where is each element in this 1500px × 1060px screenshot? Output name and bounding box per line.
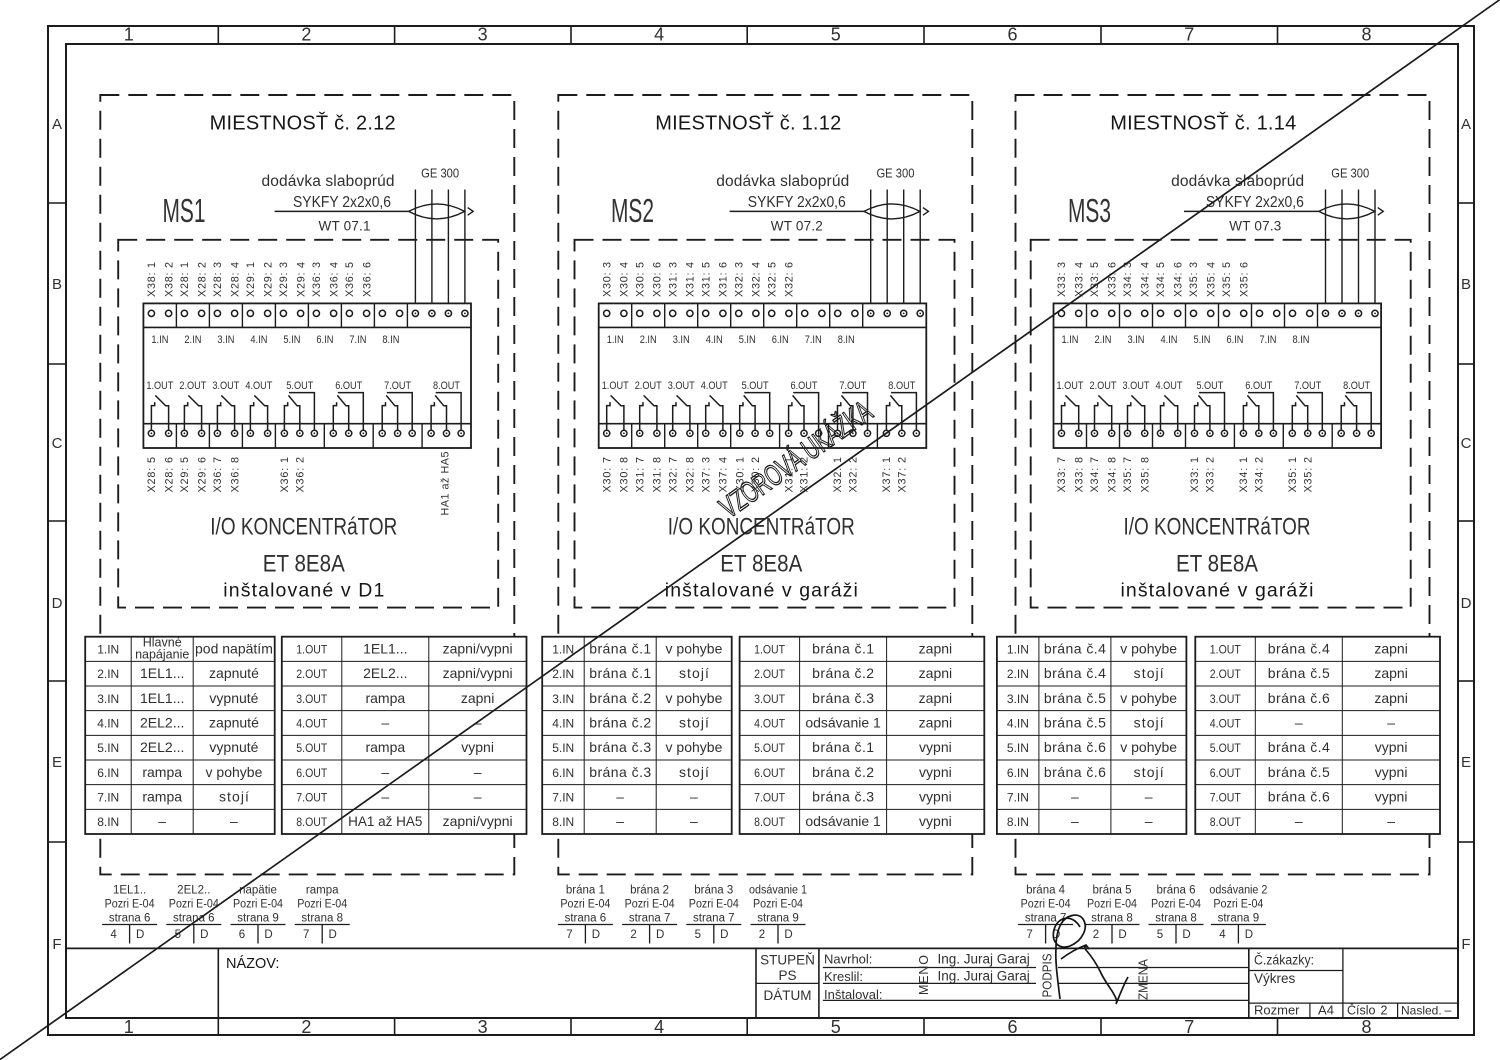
svg-text:3.IN: 3.IN (552, 692, 574, 706)
svg-text:strana 7: strana 7 (693, 913, 735, 925)
svg-text:6.IN: 6.IN (1007, 766, 1029, 780)
svg-text:vypni: vypni (919, 813, 952, 829)
svg-text:inštalované v D1: inštalované v D1 (223, 580, 384, 602)
svg-text:2EL2...: 2EL2... (140, 739, 184, 755)
svg-text:X31: 4: X31: 4 (685, 262, 697, 297)
svg-text:zapni: zapni (461, 690, 494, 706)
svg-text:X36: 5: X36: 5 (344, 262, 356, 297)
svg-text:X37: 3: X37: 3 (700, 457, 712, 493)
svg-text:MENO: MENO (917, 955, 931, 995)
svg-text:zapni: zapni (919, 714, 952, 730)
svg-text:8.IN: 8.IN (382, 334, 399, 346)
svg-text:X32: 1: X32: 1 (832, 457, 844, 493)
svg-text:6.IN: 6.IN (1227, 334, 1244, 346)
svg-text:7: 7 (1184, 1017, 1194, 1037)
svg-text:3.IN: 3.IN (97, 692, 119, 706)
svg-text:X34: 6: X34: 6 (1172, 262, 1184, 297)
svg-text:X29: 1: X29: 1 (245, 262, 257, 297)
svg-text:5.IN: 5.IN (283, 334, 300, 346)
svg-text:7.IN: 7.IN (349, 334, 366, 346)
svg-text:brána č.1: brána č.1 (812, 641, 874, 657)
svg-text:Pozri E-04: Pozri E-04 (1021, 899, 1072, 911)
svg-text:MIESTNOSŤ č. 1.12: MIESTNOSŤ č. 1.12 (655, 112, 841, 135)
svg-text:6: 6 (239, 929, 245, 941)
svg-text:X30: 7: X30: 7 (601, 457, 613, 493)
svg-text:6.OUT: 6.OUT (791, 380, 818, 392)
svg-text:brána č.2: brána č.2 (589, 690, 651, 706)
svg-text:1.IN: 1.IN (1007, 643, 1029, 657)
svg-text:brána č.3: brána č.3 (812, 690, 874, 706)
svg-text:B: B (1461, 276, 1471, 293)
svg-text:brána č.5: brána č.5 (1044, 690, 1106, 706)
svg-text:7: 7 (1026, 929, 1032, 941)
svg-text:X34: 2: X34: 2 (1254, 457, 1266, 493)
svg-text:–: – (1071, 813, 1079, 829)
svg-text:odsávanie 2: odsávanie 2 (1209, 885, 1267, 897)
svg-text:D: D (592, 929, 600, 941)
svg-text:1EL1...: 1EL1... (140, 665, 184, 681)
svg-text:X34: 5: X34: 5 (1155, 262, 1167, 297)
svg-text:7.OUT: 7.OUT (1210, 790, 1242, 804)
svg-text:D: D (200, 929, 208, 941)
svg-text:brána 1: brána 1 (566, 885, 605, 897)
svg-text:–: – (690, 813, 698, 829)
svg-text:6.IN: 6.IN (97, 766, 119, 780)
svg-text:odsávanie 1: odsávanie 1 (805, 813, 881, 829)
svg-text:2.IN: 2.IN (1095, 334, 1112, 346)
svg-text:X37: 1: X37: 1 (881, 457, 893, 493)
svg-text:2.OUT: 2.OUT (635, 380, 662, 392)
svg-text:brána č.2: brána č.2 (812, 764, 874, 780)
svg-text:3: 3 (478, 1017, 488, 1037)
svg-text:Pozri E-04: Pozri E-04 (689, 899, 740, 911)
svg-text:4.IN: 4.IN (1007, 716, 1029, 730)
svg-text:3.IN: 3.IN (1128, 334, 1145, 346)
svg-text:ET 8E8A: ET 8E8A (720, 551, 803, 578)
svg-text:dodávka slaboprúd: dodávka slaboprúd (1171, 173, 1304, 190)
svg-text:8.IN: 8.IN (1293, 334, 1310, 346)
svg-text:4.OUT: 4.OUT (296, 716, 328, 730)
svg-text:–: – (1387, 813, 1395, 829)
svg-text:D: D (656, 929, 664, 941)
svg-text:Ing. Juraj Garaj: Ing. Juraj Garaj (938, 952, 1030, 967)
svg-text:MS3: MS3 (1068, 192, 1111, 229)
svg-text:7: 7 (566, 929, 572, 941)
svg-text:4.OUT: 4.OUT (754, 716, 786, 730)
svg-text:4.IN: 4.IN (97, 716, 119, 730)
svg-text:HA1 až HA5: HA1 až HA5 (348, 814, 422, 829)
svg-text:v pohybe: v pohybe (1120, 690, 1177, 706)
svg-text:C: C (52, 435, 63, 452)
svg-text:STUPEŇ: STUPEŇ (760, 953, 815, 968)
svg-text:dodávka slaboprúd: dodávka slaboprúd (262, 173, 395, 190)
svg-text:X36: 3: X36: 3 (311, 262, 323, 297)
svg-text:X30: 3: X30: 3 (601, 262, 613, 297)
svg-text:5.OUT: 5.OUT (296, 741, 328, 755)
svg-text:C: C (1461, 435, 1472, 452)
svg-text:v pohybe: v pohybe (666, 641, 723, 657)
svg-text:6.OUT: 6.OUT (754, 766, 786, 780)
svg-text:zapni/vypni: zapni/vypni (443, 665, 513, 681)
svg-text:8: 8 (1361, 25, 1371, 45)
svg-text:Pozri E-04: Pozri E-04 (233, 899, 284, 911)
svg-text:brána 4: brána 4 (1026, 885, 1066, 897)
svg-text:X35: 6: X35: 6 (1238, 262, 1250, 297)
svg-text:SYKFY 2x2x0,6: SYKFY 2x2x0,6 (293, 194, 391, 211)
svg-text:MS2: MS2 (611, 192, 654, 229)
svg-text:4.IN: 4.IN (706, 334, 723, 346)
svg-text:brána č.4: brána č.4 (1044, 665, 1106, 681)
svg-text:X28: 4: X28: 4 (229, 262, 241, 297)
svg-text:4: 4 (654, 1017, 664, 1037)
svg-text:7.OUT: 7.OUT (839, 380, 866, 392)
svg-text:5.IN: 5.IN (739, 334, 756, 346)
svg-text:3.IN: 3.IN (1007, 692, 1029, 706)
svg-text:2EL2...: 2EL2... (363, 665, 407, 681)
svg-text:X31: 5: X31: 5 (700, 262, 712, 297)
svg-text:–: – (616, 788, 624, 804)
svg-text:7.OUT: 7.OUT (1294, 380, 1321, 392)
svg-text:8.OUT: 8.OUT (433, 380, 460, 392)
svg-text:X36: 2: X36: 2 (295, 457, 307, 493)
svg-text:strana 6: strana 6 (109, 913, 151, 925)
svg-text:3.IN: 3.IN (217, 334, 234, 346)
svg-text:MIESTNOSŤ č. 2.12: MIESTNOSŤ č. 2.12 (210, 112, 396, 135)
svg-text:1.OUT: 1.OUT (754, 643, 786, 657)
svg-text:4.IN: 4.IN (552, 716, 574, 730)
svg-text:strana 8: strana 8 (1155, 913, 1197, 925)
svg-text:5.OUT: 5.OUT (1196, 380, 1223, 392)
svg-text:pod napätím: pod napätím (195, 641, 273, 657)
svg-text:strana 8: strana 8 (1091, 913, 1133, 925)
svg-text:1.OUT: 1.OUT (1057, 380, 1084, 392)
svg-text:Nasled.: Nasled. (1401, 1004, 1442, 1018)
svg-text:X33: 5: X33: 5 (1089, 262, 1101, 297)
svg-text:1: 1 (124, 25, 134, 45)
svg-text:6.OUT: 6.OUT (1210, 766, 1242, 780)
svg-text:D: D (1182, 929, 1190, 941)
svg-text:D: D (720, 929, 728, 941)
svg-text:8.IN: 8.IN (838, 334, 855, 346)
svg-text:1.IN: 1.IN (151, 334, 168, 346)
svg-text:brána 5: brána 5 (1092, 885, 1131, 897)
svg-text:brána č.2: brána č.2 (812, 665, 874, 681)
svg-text:Kreslil:: Kreslil: (824, 969, 863, 984)
svg-text:5: 5 (695, 929, 701, 941)
svg-text:3.OUT: 3.OUT (1123, 380, 1150, 392)
svg-text:PS: PS (778, 968, 796, 983)
svg-text:–: – (1145, 813, 1153, 829)
svg-text:7: 7 (303, 929, 309, 941)
svg-text:6: 6 (1007, 1017, 1017, 1037)
svg-text:7.IN: 7.IN (1260, 334, 1277, 346)
svg-text:ET 8E8A: ET 8E8A (263, 551, 346, 578)
svg-text:brána č.3: brána č.3 (589, 764, 651, 780)
svg-text:2: 2 (1381, 1004, 1388, 1018)
svg-text:X33: 6: X33: 6 (1106, 262, 1118, 297)
svg-text:4: 4 (654, 25, 664, 45)
svg-text:2.OUT: 2.OUT (1210, 667, 1242, 681)
svg-text:Pozri E-04: Pozri E-04 (297, 899, 348, 911)
svg-text:D: D (784, 929, 792, 941)
svg-text:X35: 8: X35: 8 (1139, 457, 1151, 493)
svg-text:Pozri E-04: Pozri E-04 (1213, 899, 1264, 911)
svg-text:HA1 až HA5: HA1 až HA5 (439, 452, 451, 516)
svg-text:X31: 7: X31: 7 (634, 457, 646, 493)
svg-text:4.OUT: 4.OUT (1156, 380, 1183, 392)
svg-text:ZMENA: ZMENA (1137, 958, 1151, 1000)
svg-text:DÁTUM: DÁTUM (764, 988, 812, 1003)
svg-text:–: – (474, 788, 482, 804)
svg-text:X33: 8: X33: 8 (1073, 457, 1085, 493)
svg-text:vypni: vypni (461, 739, 494, 755)
svg-text:vypni: vypni (1375, 764, 1408, 780)
svg-text:vypnuté: vypnuté (209, 739, 258, 755)
svg-text:3.OUT: 3.OUT (1210, 692, 1242, 706)
svg-text:Č.zákazky:: Č.zákazky: (1254, 953, 1314, 968)
svg-text:X30: 8: X30: 8 (619, 457, 631, 493)
svg-text:8.OUT: 8.OUT (1343, 380, 1370, 392)
svg-text:4.IN: 4.IN (1161, 334, 1178, 346)
svg-text:Rozmer: Rozmer (1254, 1003, 1300, 1018)
svg-text:1.OUT: 1.OUT (602, 380, 629, 392)
svg-text:zapnuté: zapnuté (209, 714, 259, 730)
svg-text:zapni/vypni: zapni/vypni (443, 641, 513, 657)
svg-text:–: – (1071, 788, 1079, 804)
svg-text:strana 6: strana 6 (565, 913, 607, 925)
svg-text:B: B (52, 276, 62, 293)
svg-text:X29: 5: X29: 5 (179, 457, 191, 493)
svg-text:8: 8 (1361, 1017, 1371, 1037)
svg-text:X33: 7: X33: 7 (1056, 457, 1068, 493)
svg-text:WT 07.2: WT 07.2 (771, 219, 823, 234)
svg-text:brána č.6: brána č.6 (1268, 788, 1330, 804)
svg-text:brána č.4: brána č.4 (1044, 641, 1106, 657)
svg-text:8.IN: 8.IN (552, 815, 574, 829)
svg-text:4.OUT: 4.OUT (701, 380, 728, 392)
svg-text:X31: 6: X31: 6 (718, 262, 730, 297)
svg-text:X28: 1: X28: 1 (179, 262, 191, 297)
svg-text:6.IN: 6.IN (552, 766, 574, 780)
svg-text:F: F (1461, 936, 1470, 953)
svg-text:brána č.6: brána č.6 (1044, 739, 1106, 755)
svg-text:6.OUT: 6.OUT (335, 380, 362, 392)
svg-text:X32: 7: X32: 7 (667, 457, 679, 493)
svg-text:X36: 1: X36: 1 (279, 457, 291, 493)
svg-text:X29: 4: X29: 4 (295, 262, 307, 297)
svg-text:D: D (329, 929, 337, 941)
svg-text:X32: 2: X32: 2 (848, 457, 860, 493)
svg-text:–: – (1387, 714, 1395, 730)
svg-text:D: D (1461, 595, 1472, 612)
svg-text:4: 4 (110, 929, 117, 941)
svg-text:zapni: zapni (1374, 641, 1407, 657)
svg-text:rampa: rampa (365, 690, 405, 706)
svg-text:X35: 4: X35: 4 (1205, 262, 1217, 297)
svg-text:7: 7 (1184, 25, 1194, 45)
svg-text:–: – (158, 813, 166, 829)
svg-text:strana 9: strana 9 (237, 913, 279, 925)
svg-text:X31: 3: X31: 3 (667, 262, 679, 297)
svg-text:7.OUT: 7.OUT (754, 790, 786, 804)
svg-text:D: D (136, 929, 144, 941)
svg-text:8.OUT: 8.OUT (1210, 815, 1242, 829)
svg-text:X32: 3: X32: 3 (733, 262, 745, 297)
svg-text:v pohybe: v pohybe (666, 739, 723, 755)
svg-text:X34: 1: X34: 1 (1238, 457, 1250, 493)
svg-text:F: F (52, 936, 61, 953)
svg-text:X32: 8: X32: 8 (685, 457, 697, 493)
svg-text:5: 5 (831, 1017, 841, 1037)
svg-text:stojí: stojí (679, 764, 709, 780)
svg-text:5.OUT: 5.OUT (1210, 741, 1242, 755)
svg-text:5: 5 (831, 25, 841, 45)
svg-text:GE 300: GE 300 (421, 167, 459, 181)
svg-text:X29: 2: X29: 2 (262, 262, 274, 297)
svg-text:brána č.3: brána č.3 (589, 739, 651, 755)
svg-text:7.IN: 7.IN (1007, 790, 1029, 804)
svg-text:v pohybe: v pohybe (1120, 739, 1177, 755)
svg-text:2EL2..: 2EL2.. (177, 885, 210, 897)
svg-text:–: – (381, 714, 389, 730)
svg-text:zapni/vypni: zapni/vypni (443, 813, 513, 829)
svg-text:brána č.3: brána č.3 (812, 788, 874, 804)
svg-text:1.OUT: 1.OUT (296, 643, 328, 657)
svg-text:1.IN: 1.IN (552, 643, 574, 657)
svg-text:Pozri E-04: Pozri E-04 (1087, 899, 1138, 911)
svg-text:3.OUT: 3.OUT (296, 692, 328, 706)
svg-text:X36: 4: X36: 4 (328, 262, 340, 297)
svg-text:1.OUT: 1.OUT (1210, 643, 1242, 657)
svg-text:brána č.6: brána č.6 (1268, 690, 1330, 706)
svg-text:Inštaloval:: Inštaloval: (824, 987, 883, 1002)
svg-text:E: E (52, 754, 62, 771)
svg-text:ET 8E8A: ET 8E8A (1176, 551, 1259, 578)
svg-text:PODPIS: PODPIS (1041, 954, 1055, 998)
svg-text:X28: 6: X28: 6 (163, 457, 175, 493)
svg-text:4.OUT: 4.OUT (1210, 716, 1242, 730)
svg-text:5.OUT: 5.OUT (742, 380, 769, 392)
svg-text:2.OUT: 2.OUT (179, 380, 206, 392)
svg-text:E: E (1461, 754, 1471, 771)
svg-text:2.IN: 2.IN (552, 667, 574, 681)
svg-text:X28: 2: X28: 2 (196, 262, 208, 297)
svg-text:brána 3: brána 3 (694, 885, 733, 897)
svg-text:stojí: stojí (219, 788, 249, 804)
svg-text:napájanie: napájanie (135, 648, 189, 662)
svg-text:rampa: rampa (365, 739, 405, 755)
svg-text:I/O KONCENTRáTOR: I/O KONCENTRáTOR (1124, 514, 1311, 541)
svg-text:X34: 8: X34: 8 (1106, 457, 1118, 493)
svg-text:5: 5 (1157, 929, 1163, 941)
svg-text:X32: 4: X32: 4 (751, 262, 763, 297)
svg-text:rampa: rampa (142, 764, 182, 780)
svg-text:X28: 3: X28: 3 (212, 262, 224, 297)
svg-text:X33: 4: X33: 4 (1073, 262, 1085, 297)
svg-text:MIESTNOSŤ č. 1.14: MIESTNOSŤ č. 1.14 (1110, 112, 1296, 135)
svg-text:X30: 4: X30: 4 (619, 262, 631, 297)
svg-text:–: – (1295, 813, 1303, 829)
svg-text:8.IN: 8.IN (1007, 815, 1029, 829)
svg-text:vypni: vypni (919, 788, 952, 804)
svg-text:2.OUT: 2.OUT (754, 667, 786, 681)
svg-text:X31: 8: X31: 8 (652, 457, 664, 493)
svg-text:1.IN: 1.IN (1062, 334, 1079, 346)
svg-text:X33: 3: X33: 3 (1056, 262, 1068, 297)
svg-text:X30: 5: X30: 5 (634, 262, 646, 297)
svg-text:5.IN: 5.IN (552, 741, 574, 755)
svg-text:1.IN: 1.IN (97, 643, 119, 657)
svg-text:–: – (381, 788, 389, 804)
svg-text:brána č.5: brána č.5 (1268, 764, 1330, 780)
svg-text:I/O KONCENTRáTOR: I/O KONCENTRáTOR (210, 514, 397, 541)
svg-text:5.IN: 5.IN (97, 741, 119, 755)
svg-text:–: – (230, 813, 238, 829)
svg-text:brána č.5: brána č.5 (1268, 665, 1330, 681)
svg-text:2.OUT: 2.OUT (296, 667, 328, 681)
svg-text:SYKFY 2x2x0,6: SYKFY 2x2x0,6 (748, 194, 846, 211)
svg-text:Výkres: Výkres (1254, 971, 1296, 986)
svg-text:brána č.6: brána č.6 (1044, 764, 1106, 780)
svg-text:zapni: zapni (1374, 690, 1407, 706)
svg-text:2.IN: 2.IN (1007, 667, 1029, 681)
svg-text:1EL1..: 1EL1.. (113, 885, 146, 897)
svg-text:X33: 2: X33: 2 (1205, 457, 1217, 493)
svg-text:7.OUT: 7.OUT (296, 790, 328, 804)
svg-text:8.OUT: 8.OUT (296, 815, 328, 829)
svg-text:vypni: vypni (1375, 739, 1408, 755)
svg-text:X35: 5: X35: 5 (1221, 262, 1233, 297)
svg-text:Pozri E-04: Pozri E-04 (169, 899, 220, 911)
svg-text:NÁZOV:: NÁZOV: (226, 955, 279, 972)
svg-text:v pohybe: v pohybe (1120, 641, 1177, 657)
svg-text:–: – (474, 764, 482, 780)
svg-text:strana 7: strana 7 (629, 913, 671, 925)
svg-text:stojí: stojí (1134, 714, 1164, 730)
svg-text:3.OUT: 3.OUT (754, 692, 786, 706)
svg-text:X29: 3: X29: 3 (278, 262, 290, 297)
svg-text:3.OUT: 3.OUT (668, 380, 695, 392)
svg-text:zapni: zapni (919, 690, 952, 706)
svg-text:3: 3 (478, 25, 488, 45)
svg-text:7.IN: 7.IN (97, 790, 119, 804)
svg-text:zapni: zapni (919, 665, 952, 681)
svg-text:zapni: zapni (1374, 665, 1407, 681)
svg-text:vypnuté: vypnuté (209, 690, 258, 706)
svg-text:Pozri E-04: Pozri E-04 (560, 899, 611, 911)
svg-text:X35: 2: X35: 2 (1302, 457, 1314, 493)
svg-text:4.IN: 4.IN (250, 334, 267, 346)
svg-text:D: D (1245, 929, 1253, 941)
svg-text:stojí: stojí (1134, 764, 1164, 780)
svg-text:8.OUT: 8.OUT (754, 815, 786, 829)
svg-text:6.OUT: 6.OUT (1245, 380, 1272, 392)
svg-text:2.IN: 2.IN (184, 334, 201, 346)
svg-text:2.IN: 2.IN (97, 667, 119, 681)
svg-text:X29: 6: X29: 6 (196, 457, 208, 493)
svg-text:1.IN: 1.IN (607, 334, 624, 346)
svg-text:1EL1...: 1EL1... (363, 641, 407, 657)
svg-text:brána č.4: brána č.4 (1268, 641, 1330, 657)
svg-text:2.OUT: 2.OUT (1090, 380, 1117, 392)
svg-text:vypni: vypni (919, 739, 952, 755)
svg-text:X35: 1: X35: 1 (1287, 457, 1299, 493)
svg-text:X35: 7: X35: 7 (1122, 457, 1134, 493)
svg-text:rampa: rampa (142, 788, 182, 804)
svg-text:X38: 2: X38: 2 (163, 262, 175, 297)
svg-text:A: A (1461, 116, 1471, 133)
svg-text:strana 8: strana 8 (301, 913, 343, 925)
